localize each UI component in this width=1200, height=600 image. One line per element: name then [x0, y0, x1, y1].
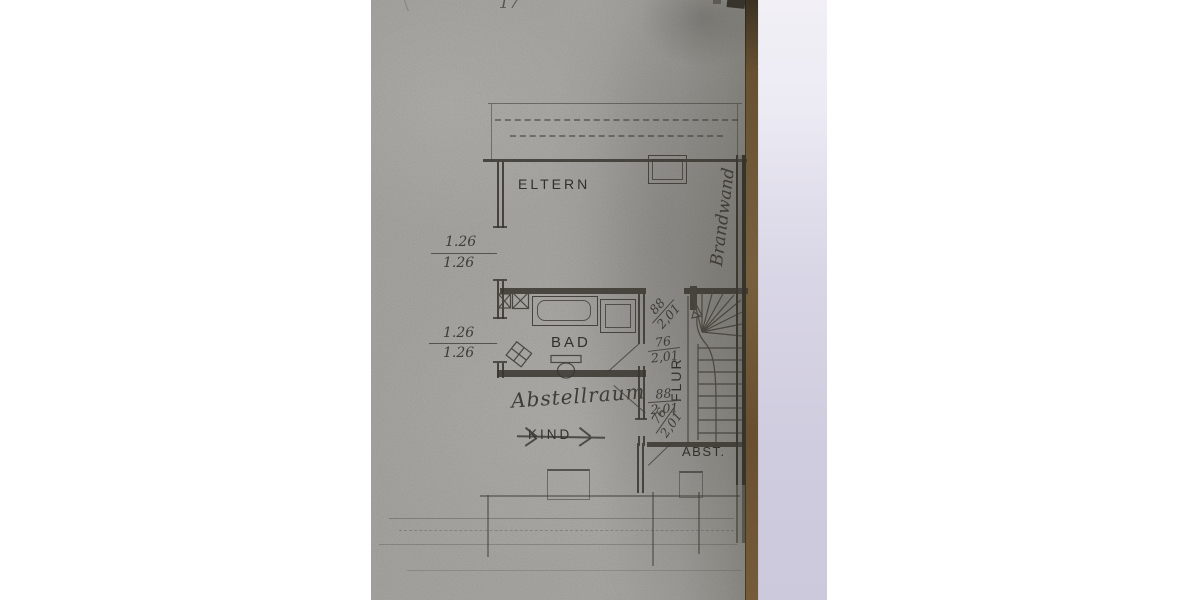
chimney-symbol: [648, 155, 687, 184]
vent-shaft-symbols: [497, 291, 531, 311]
roof-dashed-line-1: [495, 119, 738, 121]
dim-window-upper-top: 1.26: [445, 234, 476, 250]
dim-window-lower-bottom: 1.26: [443, 345, 474, 361]
washbasin-symbol: [503, 339, 535, 371]
bathtub-inner: [537, 300, 591, 321]
roof-outline-line: [488, 103, 742, 104]
binding-tape-mark-small: [713, 0, 721, 4]
bathtub-symbol: [532, 296, 598, 326]
room-label-abst: ABST.: [682, 444, 726, 459]
window-jamb: [493, 317, 507, 319]
bottom-wall-faint: [480, 495, 740, 497]
dim-window-upper-bottom: 1.26: [443, 255, 474, 271]
bottom-faint-vertical: [652, 492, 654, 566]
eltern-top-wall: [483, 159, 747, 162]
chimney-inner-line: [652, 159, 683, 180]
floorplan-photo: 17 ELTERN 1.26 1.26 1.26 1.26: [371, 0, 827, 600]
page: 17 ELTERN 1.26 1.26 1.26 1.26: [0, 0, 1200, 600]
bottom-faint-dashed: [399, 530, 734, 531]
shower-inner: [605, 304, 631, 328]
room-label-eltern: ELTERN: [518, 176, 590, 192]
bottom-faint-vertical: [487, 495, 489, 557]
exterior-wall-right-faded: [736, 485, 746, 543]
handwritten-page-number: 17: [499, 0, 519, 12]
mid-wall-lower: [638, 377, 645, 419]
room-label-bad: BAD: [551, 334, 591, 351]
bottom-faint-line: [379, 544, 737, 545]
bottom-faint-vertical: [698, 492, 700, 554]
exterior-wall-right: [736, 155, 746, 485]
shower-symbol: [600, 299, 636, 333]
bottom-faint-line: [389, 518, 734, 519]
bad-bottom-wall: [497, 370, 646, 377]
dim-window-lower-line: [429, 343, 497, 344]
divider-wall-kind-abst: [637, 443, 644, 493]
dim-window-upper-line: [431, 253, 497, 254]
roof-dashed-line-2: [510, 135, 723, 137]
bottom-faint-line: [407, 570, 742, 571]
dim-window-lower-top: 1.26: [443, 325, 474, 341]
roof-outline-left: [491, 104, 492, 161]
window-jamb: [493, 226, 507, 228]
door-jamb: [635, 418, 647, 420]
photo-backing-surface: [758, 0, 827, 600]
exterior-wall-left-upper: [497, 161, 504, 228]
